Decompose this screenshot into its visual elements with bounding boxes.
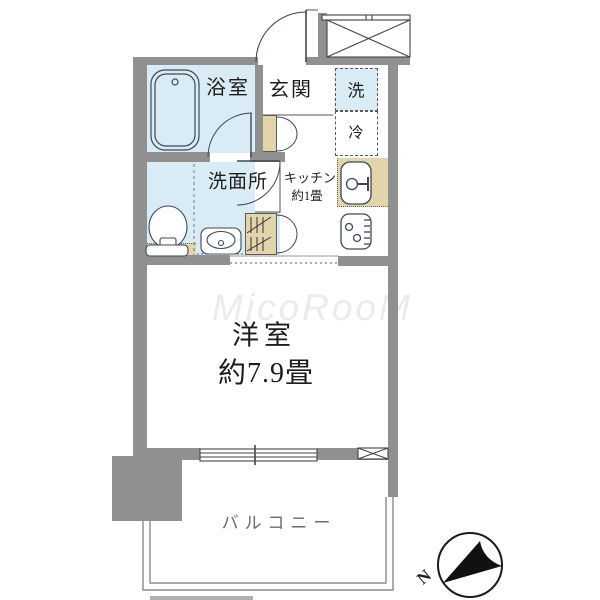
washer-label: 洗 [348,83,365,100]
floorplan: MicoRooM [0,0,600,600]
stove-icon [341,214,371,249]
washroom-label: 洗面所 [208,173,268,192]
meter-box-icon [322,15,410,57]
bathroom-door [208,113,252,157]
toilet-icon [146,206,188,256]
bathtub-icon [151,70,199,150]
fridge-label: 冷 [348,127,363,142]
vent-box-icon [358,448,388,459]
closet-doors [277,215,297,253]
washbasin-icon [197,228,246,254]
main-room-size-label: 約7.9畳 [218,360,314,388]
bathroom-label: 浴室 [206,78,250,98]
balcony-window [200,445,317,465]
entrance-door [256,10,306,62]
kitchen-size-label: 約1畳 [291,190,322,203]
compass-icon [438,533,502,597]
entrance-label: 玄関 [269,80,313,100]
boundary-lines [194,10,338,263]
hanger-icon [247,217,271,251]
balcony-label: バルコニー [222,515,337,532]
balcony-railing [143,497,393,590]
kitchen-label: キッチン [284,172,336,185]
main-room-label: 洋室 [232,323,296,350]
kitchen-sink-icon [341,162,371,204]
shoe-cabinet-doors [277,117,297,151]
